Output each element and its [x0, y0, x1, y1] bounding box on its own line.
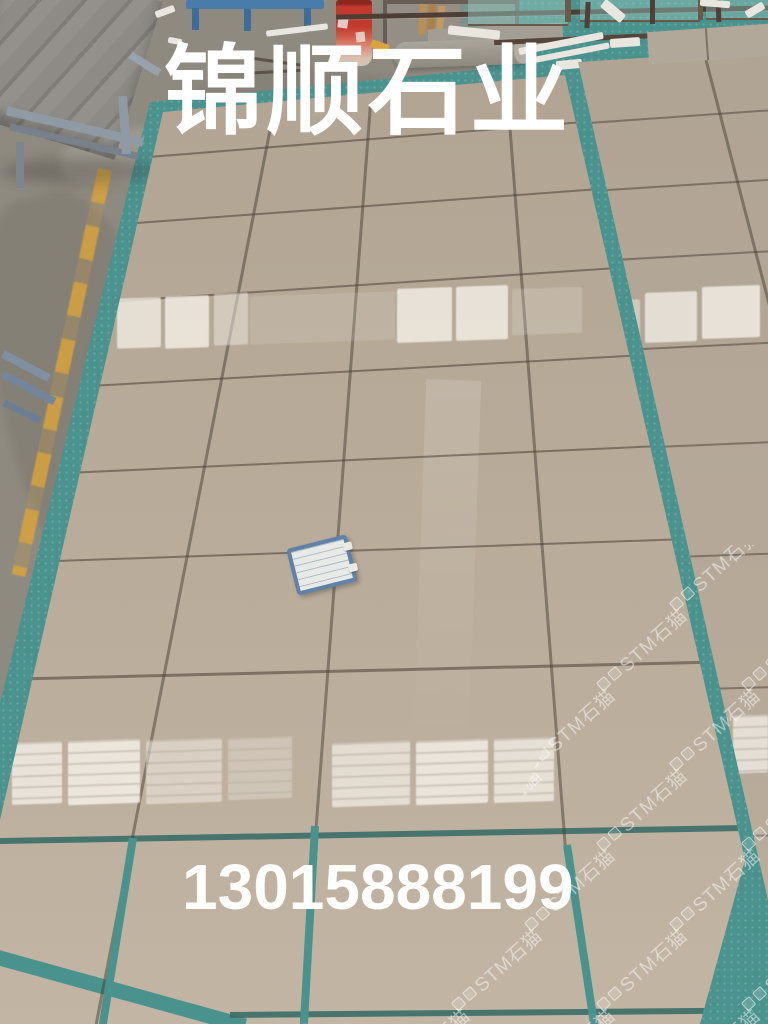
watermark-item: STM石猫 [590, 922, 692, 1018]
factory-floor-photo: STM石猫STM石猫STM石猫STM石猫STM石猫STM石猫STM石猫STM石猫… [0, 0, 768, 1024]
watermark-item: STM石猫 [663, 842, 765, 938]
window-reflection [250, 291, 395, 344]
watermark-logo-icon [607, 986, 623, 1002]
phone-number: 13015888199 [182, 850, 574, 924]
glass-panel [580, 0, 700, 22]
tile-joint-column [704, 58, 768, 315]
watermark-item: STM石猫 [518, 1002, 620, 1024]
window-reflection [214, 292, 248, 345]
watermark-text: STM石猫 [686, 682, 766, 758]
watermark-text: STM石猫 [613, 602, 693, 678]
watermark-logo-icon [680, 586, 696, 602]
rail-tie [650, 0, 655, 24]
window-reflection [146, 738, 222, 805]
pallet-leg [16, 142, 24, 188]
window-reflection [416, 739, 488, 806]
watermark-text: STM石猫 [468, 922, 548, 998]
watermark-text: STM石猫 [613, 922, 693, 998]
window-reflection [12, 741, 62, 805]
watermark-item: STM石猫 [590, 762, 692, 858]
window-reflection [332, 741, 410, 808]
watermark-item: STM石猫 [590, 602, 692, 698]
window-reflection [456, 285, 508, 341]
window-reflection [645, 291, 697, 343]
watermark-item: STM石猫 [735, 602, 768, 698]
watermark-logo-icon [607, 666, 623, 682]
watermark-item: STM石猫 [735, 922, 768, 1018]
watermark-item: STM石猫 [735, 762, 768, 858]
workbench-leg [192, 8, 199, 30]
window-reflection [228, 736, 292, 800]
window-reflection [117, 297, 161, 349]
light-streak [414, 379, 482, 741]
window-reflection [702, 285, 760, 339]
watermark-item: STM石猫 [663, 682, 765, 778]
tile-joint [705, 28, 709, 60]
watermark-logo-icon [680, 746, 696, 762]
glass-panel [468, 0, 568, 26]
window-reflection [512, 287, 582, 335]
company-name: 锦顺石业 [164, 40, 572, 143]
wood-stick [418, 4, 427, 34]
window-reflection [165, 295, 209, 349]
watermark-text: STM石猫 [686, 842, 766, 918]
watermark-logo-icon [752, 666, 768, 682]
watermark-logo-icon [462, 986, 478, 1002]
slab-stack-shadow [0, 158, 160, 184]
watermark-logo-icon [680, 906, 696, 922]
watermark-text: STM石猫 [613, 762, 693, 838]
window-reflection [397, 287, 452, 343]
watermark-item: STM石猫 [663, 1002, 765, 1024]
glass-frame-bar [565, 0, 571, 22]
watermark-logo-icon [752, 986, 768, 1002]
teal-row-gap-corner [0, 945, 247, 1024]
watermark-logo-icon [607, 826, 623, 842]
watermark-logo-icon [752, 826, 768, 842]
workbench-leg [244, 9, 251, 31]
window-reflection [68, 739, 140, 806]
